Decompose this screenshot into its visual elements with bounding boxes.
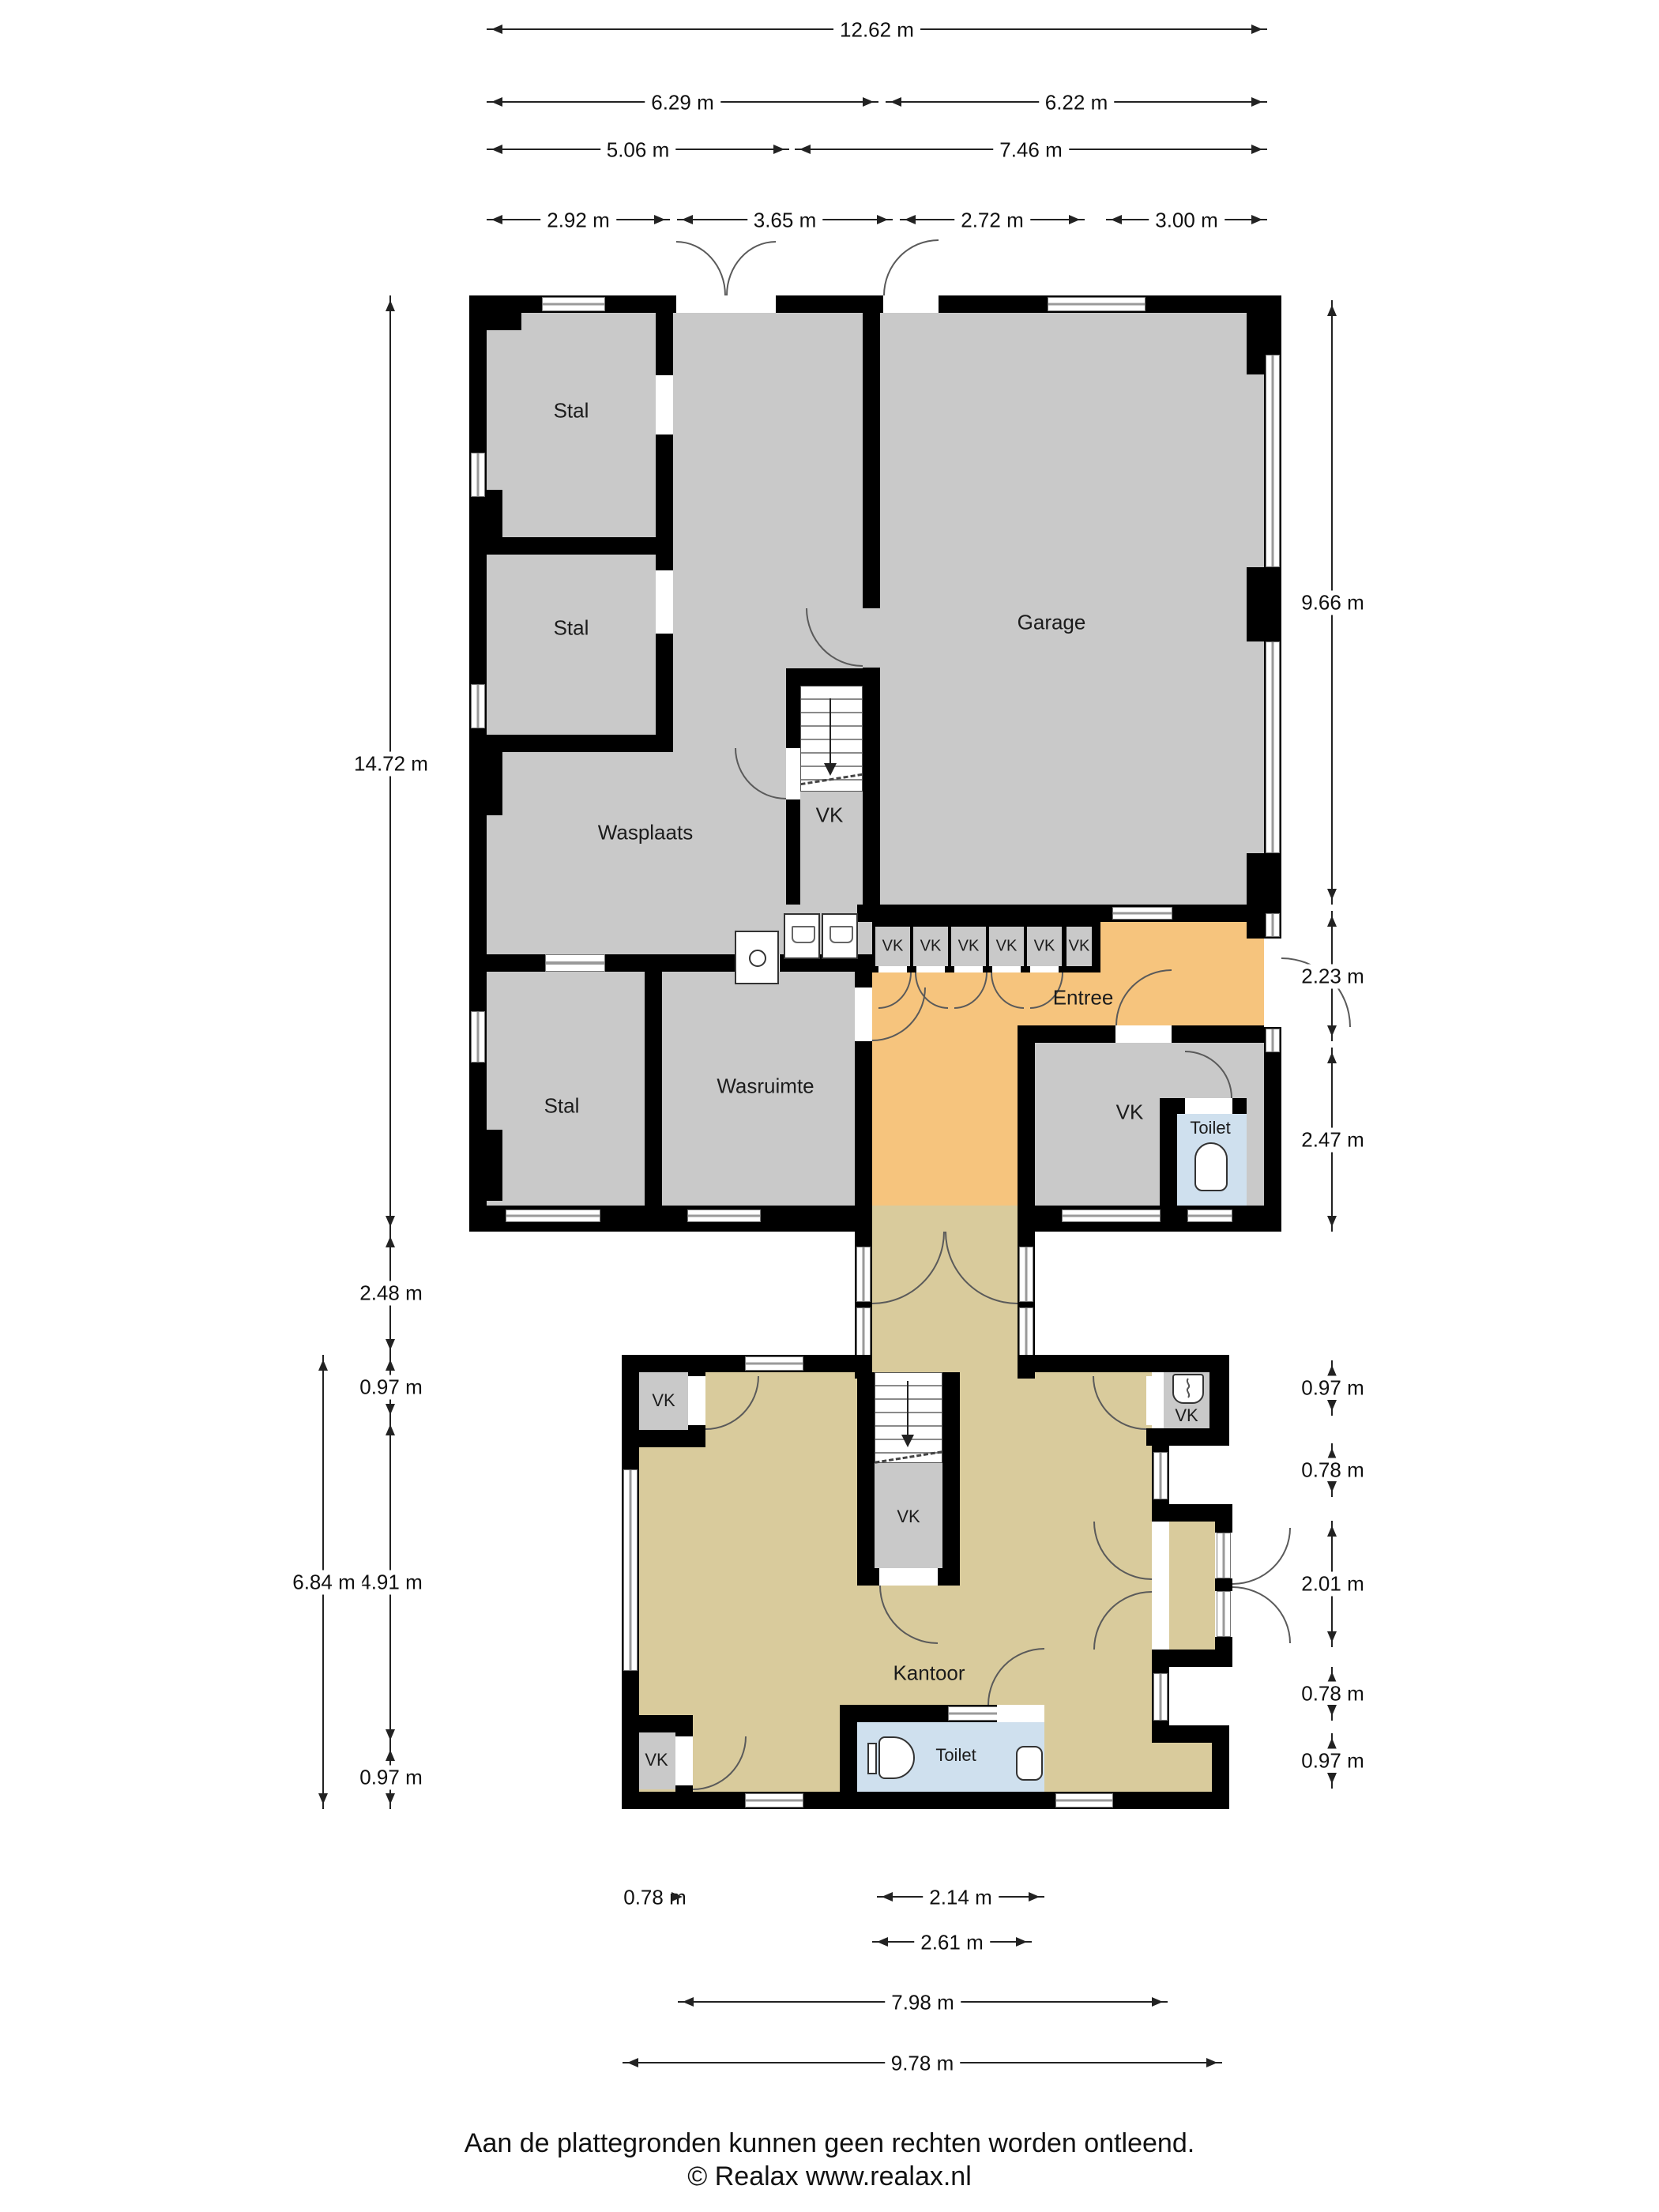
- door-arc: [726, 241, 776, 295]
- dimension: 9.66 m: [1331, 300, 1333, 905]
- dimension-label: 3.00 m: [1149, 209, 1224, 233]
- room-label-vk: VK: [1034, 938, 1055, 956]
- wall-pier: [1247, 567, 1281, 641]
- wall-garage-left-lower: [863, 668, 880, 905]
- wall-stal2-bottom: [487, 735, 673, 752]
- wall-stairs2-right: [942, 1355, 960, 1586]
- sliding-door: [545, 954, 605, 972]
- washer-basin-glyph: [792, 926, 815, 943]
- room-label-entree: Entree: [1053, 986, 1114, 1010]
- dimension: 7.98 m: [678, 2001, 1168, 2003]
- wall-stairs-left: [786, 799, 800, 905]
- room-label-stal: Stal: [544, 1094, 580, 1119]
- dimension-label: 2.23 m: [1295, 964, 1371, 988]
- dimension: 0.97 m: [1331, 1733, 1333, 1789]
- window: [1266, 1029, 1280, 1052]
- disclaimer-text: Aan de plattegronden kunnen geen rechten…: [0, 2128, 1659, 2159]
- wall-bay-bottom: [1152, 1650, 1232, 1667]
- dimension: 14.72 m: [389, 295, 391, 1232]
- dimension-label: 0.97 m: [353, 1375, 429, 1400]
- wall-garage-left-upper: [863, 313, 880, 608]
- room-label-garage: Garage: [1018, 611, 1086, 635]
- wall-stal3-right: [645, 972, 662, 1206]
- dimension-label: 14.72 m: [348, 751, 434, 776]
- dimension-label: 2.48 m: [353, 1281, 429, 1306]
- window: [1266, 641, 1280, 853]
- room-label-vk: VK: [897, 1507, 920, 1527]
- dimension: 3.65 m: [677, 219, 893, 220]
- toilet-tank-icon: [867, 1743, 877, 1774]
- dimension-label: 0.78 m: [617, 1886, 693, 1910]
- dimension: 2.23 m: [1331, 911, 1333, 1041]
- window: [1153, 1452, 1168, 1499]
- room-label-vk: VK: [1116, 1100, 1144, 1125]
- pass-window: [1112, 907, 1172, 920]
- door-opening: [855, 987, 872, 1041]
- door-opening: [878, 966, 907, 972]
- bay-floor: [1169, 1522, 1215, 1650]
- door-opening: [786, 748, 800, 799]
- wall-closet2-bottom: [1146, 1428, 1229, 1446]
- door-opening: [916, 966, 945, 972]
- wall-toilet-left: [1160, 1098, 1177, 1206]
- window: [1055, 1793, 1113, 1808]
- dimension-label: 7.46 m: [993, 138, 1069, 163]
- dimension-label: 9.78 m: [885, 2052, 961, 2076]
- wall-stairs2-left: [857, 1355, 875, 1586]
- stair-direction-arrow: [907, 1381, 908, 1443]
- wall-bay-post: [1215, 1522, 1232, 1533]
- dimension-label: 2.92 m: [540, 209, 616, 233]
- door-arc: [1232, 1586, 1291, 1643]
- dimension-label: 0.97 m: [353, 1765, 429, 1789]
- room-label-vk: VK: [645, 1750, 668, 1770]
- door-opening: [954, 966, 983, 972]
- door-opening: [1030, 966, 1059, 972]
- door-opening: [1146, 1376, 1164, 1425]
- window: [471, 453, 485, 497]
- wall-corner-br-top: [1152, 1725, 1229, 1743]
- dimension-label: 12.62 m: [833, 18, 920, 43]
- wall-vkroom-left: [1018, 1025, 1035, 1214]
- corridor-opening: [872, 1206, 1018, 1232]
- dimension: 2.14 m: [877, 1896, 1044, 1898]
- room-label-wasruimte: Wasruimte: [717, 1074, 814, 1099]
- dimension: 2.92 m: [487, 219, 670, 220]
- room-label-vk: VK: [1069, 938, 1090, 956]
- dimension-label: 2.47 m: [1295, 1127, 1371, 1152]
- wall-stairs-top: [786, 668, 880, 686]
- wall-stal1-bottom: [487, 537, 673, 555]
- dimension-label: 3.65 m: [747, 209, 823, 233]
- window: [1266, 913, 1280, 937]
- door-opening: [1217, 1533, 1231, 1578]
- room-label-vk: VK: [920, 938, 942, 956]
- room-label-vk: VK: [882, 938, 904, 956]
- door-opening: [879, 1568, 938, 1586]
- room-label-stal: Stal: [554, 399, 589, 423]
- dimension: 9.78 m: [623, 2062, 1222, 2063]
- room-label-vk: VK: [958, 938, 980, 956]
- door-opening: [1115, 1025, 1172, 1043]
- room-label-wasplaats: Wasplaats: [598, 821, 693, 845]
- room-label-kantoor: Kantoor: [893, 1661, 965, 1686]
- room-entree-floor: [872, 1043, 1018, 1214]
- door-arc: [1232, 1528, 1291, 1585]
- door-opening: [1264, 939, 1281, 1027]
- dimension-label: 0.97 m: [1295, 1749, 1371, 1774]
- dimension-label: 6.84 m: [286, 1570, 362, 1594]
- door-opening: [656, 375, 673, 434]
- floor-plan: Stal Stal Stal Garage Wasplaats Wasruimt…: [0, 0, 1659, 2212]
- dimension-label: 0.78 m: [1295, 1682, 1371, 1706]
- window: [745, 1356, 803, 1371]
- dimension-label: 0.78 m: [1295, 1458, 1371, 1483]
- room-label-vk: VK: [652, 1390, 675, 1411]
- door-opening: [675, 1736, 693, 1785]
- window: [1266, 355, 1280, 567]
- door-opening: [688, 1376, 705, 1425]
- wall-kantoor-bottom: [622, 1792, 1229, 1809]
- room-label-toilet: Toilet: [935, 1745, 976, 1766]
- room-label-toilet: Toilet: [1190, 1118, 1230, 1138]
- window: [687, 1209, 761, 1222]
- sink-icon: [1016, 1746, 1043, 1781]
- dimension: 12.62 m: [487, 28, 1267, 30]
- dimension: 2.61 m: [872, 1941, 1032, 1943]
- window: [471, 1011, 485, 1063]
- dimension: 0.78 m: [1331, 1667, 1333, 1721]
- dimension: 2.01 m: [1331, 1521, 1333, 1647]
- window: [471, 684, 485, 728]
- dimension-label: 7.98 m: [885, 1991, 961, 2015]
- dimension: 6.22 m: [886, 101, 1267, 103]
- toilet-icon: [1194, 1142, 1228, 1191]
- window: [856, 1247, 871, 1302]
- window: [1187, 1209, 1232, 1222]
- dimension-label: 4.91 m: [353, 1571, 429, 1595]
- dimension: 2.72 m: [900, 219, 1085, 220]
- wall-bay-top: [1152, 1504, 1232, 1522]
- door-arc: [883, 239, 939, 295]
- dimension-label: 6.22 m: [1039, 91, 1115, 115]
- dimension: 5.06 m: [487, 149, 789, 150]
- dimension-label: 9.66 m: [1295, 590, 1371, 615]
- dimension-label: 2.72 m: [954, 209, 1030, 233]
- dimension: 6.84 m: [322, 1355, 324, 1809]
- window: [623, 1469, 638, 1671]
- sink-circle-icon: [749, 950, 766, 967]
- dimension: 6.29 m: [487, 101, 878, 103]
- room-label-stal: Stal: [554, 616, 589, 641]
- wall-garage-bottom: [857, 905, 1281, 922]
- wall-pier: [469, 295, 521, 330]
- corridor-opening: [872, 1355, 1018, 1372]
- dimension-label: 2.14 m: [923, 1886, 999, 1910]
- room-label-vk: VK: [1175, 1405, 1198, 1426]
- dimension: 0.78 m: [1331, 1443, 1333, 1497]
- dimension: 0.97 m: [389, 1355, 391, 1420]
- door-opening: [676, 295, 776, 313]
- wall-corner-br-right: [1212, 1743, 1229, 1809]
- room-kantoor-floor: [1152, 1743, 1212, 1792]
- door-opening: [1152, 1522, 1169, 1650]
- dimension: 7.46 m: [795, 149, 1267, 150]
- wall-pier: [487, 752, 502, 815]
- window: [1062, 1209, 1161, 1222]
- window: [1048, 297, 1145, 311]
- dimension: 2.47 m: [1331, 1048, 1333, 1232]
- wall-bay-post: [1215, 1578, 1232, 1591]
- dimension-label: 2.01 m: [1295, 1572, 1371, 1597]
- dimension: 0.78 m: [623, 1896, 687, 1898]
- window: [1019, 1247, 1033, 1302]
- door-opening: [1185, 1098, 1232, 1114]
- dimension: 0.97 m: [389, 1745, 391, 1809]
- dimension: 2.48 m: [389, 1232, 391, 1355]
- copyright-text: © Realax www.realax.nl: [0, 2161, 1659, 2192]
- window: [506, 1209, 600, 1222]
- wall-outer-left: [469, 295, 487, 1232]
- door-opening: [992, 966, 1021, 972]
- window: [542, 297, 605, 311]
- door-opening: [883, 295, 939, 313]
- room-label-vk: VK: [996, 938, 1018, 956]
- stair-direction-arrow: [829, 698, 831, 771]
- room-label-vk: VK: [816, 803, 844, 828]
- flame-glyph-icon: [1180, 1377, 1196, 1399]
- dimension-label: 2.61 m: [914, 1931, 990, 1955]
- dimension: 0.97 m: [1331, 1360, 1333, 1416]
- dimension: 4.91 m: [389, 1420, 391, 1745]
- dimension-label: 5.06 m: [600, 138, 676, 163]
- wall-bay-post: [1215, 1637, 1232, 1650]
- washer-basin-glyph: [829, 926, 853, 943]
- door-opening: [656, 570, 673, 634]
- dimension-label: 6.29 m: [645, 91, 720, 115]
- wall-closet1-bottom: [622, 1430, 705, 1447]
- door-opening: [997, 1705, 1044, 1722]
- dimension: 3.00 m: [1106, 219, 1267, 220]
- wall-pier: [487, 1130, 502, 1201]
- dimension-label: 0.97 m: [1295, 1376, 1371, 1401]
- door-opening: [1217, 1591, 1231, 1637]
- wall-closet3-top: [639, 1715, 693, 1732]
- window: [1153, 1673, 1168, 1721]
- window: [745, 1793, 803, 1808]
- door-arc: [676, 241, 726, 295]
